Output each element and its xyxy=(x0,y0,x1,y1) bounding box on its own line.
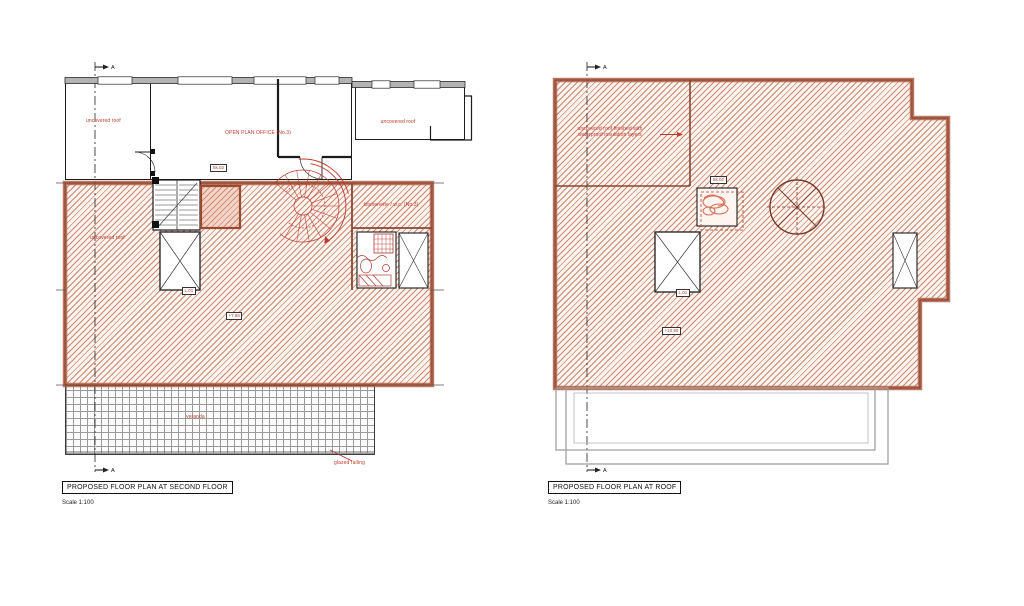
label-open-plan-office: OPEN PLAN OFFICE (No.3) xyxy=(208,131,308,137)
tag-lift-left: L.01 xyxy=(182,287,196,295)
label-veranda: veranda xyxy=(186,415,205,421)
label-uncovered-roof-right: uncovered roof xyxy=(368,120,428,126)
plan-roof xyxy=(512,0,1024,606)
label-roof-note-line2: waterproof insulation layers xyxy=(558,133,662,139)
label-kitchenette: kitchenette / w.c. (No.3) xyxy=(352,203,430,209)
label-hatch-area: uncovered roof xyxy=(90,236,125,242)
scale-roof: Scale 1:100 xyxy=(548,500,580,506)
room-uncovered-roof-left xyxy=(65,78,155,180)
room-open-plan-office xyxy=(150,78,352,180)
tag-level-left: +7.85 xyxy=(226,312,242,320)
label-uncovered-roof-left: uncovered roof xyxy=(86,119,121,125)
room-uncovered-roof-right xyxy=(355,82,465,140)
tag-stair-right: Sk.02 xyxy=(710,176,727,184)
title-roof: PROPOSED FLOOR PLAN AT ROOF xyxy=(548,481,681,494)
scale-second-floor: Scale 1:100 xyxy=(62,500,94,506)
plan-second-floor xyxy=(0,0,512,606)
tag-lift-right: L.01 xyxy=(676,289,690,297)
tag-level-right: +10.90 xyxy=(662,327,681,335)
tiled-veranda xyxy=(65,385,375,455)
tag-stair-left: Sk.02 xyxy=(210,164,227,172)
second-floor-roof-hatch xyxy=(65,183,432,385)
title-second-floor: PROPOSED FLOOR PLAN AT SECOND FLOOR xyxy=(62,481,233,494)
label-glazed-railing: glazed railing xyxy=(334,461,365,467)
